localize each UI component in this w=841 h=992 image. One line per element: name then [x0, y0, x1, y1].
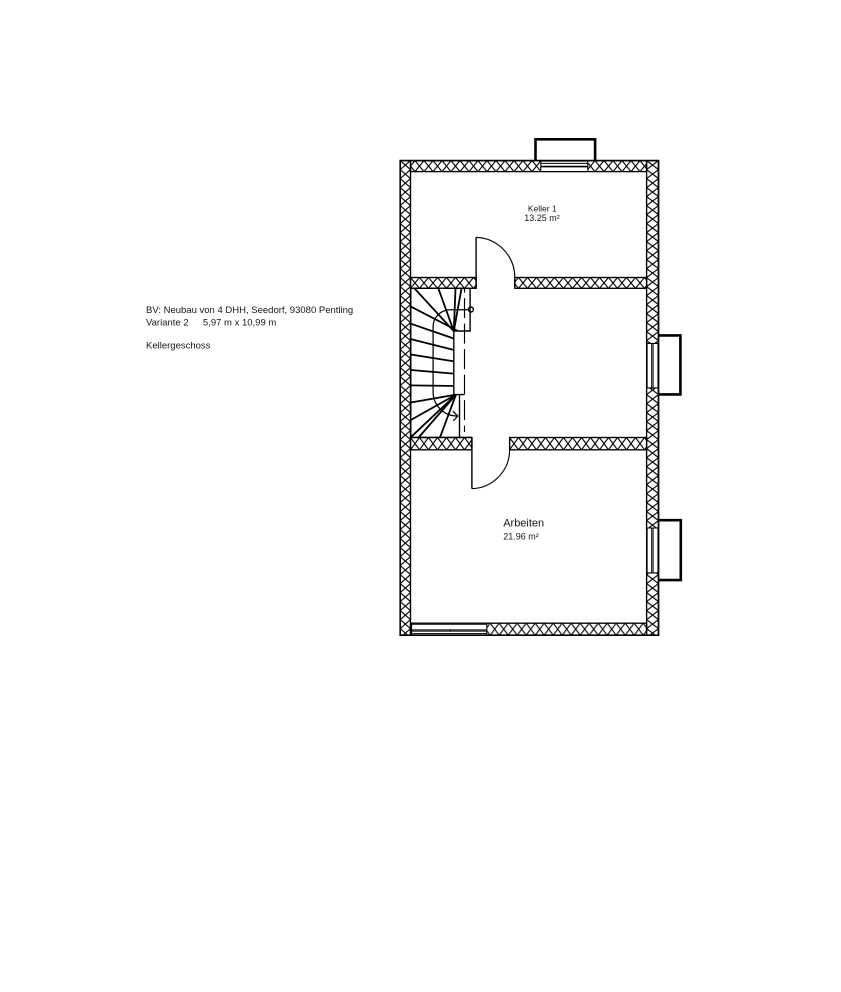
svg-text:Arbeiten: Arbeiten [503, 517, 544, 529]
svg-text:Keller 1: Keller 1 [528, 203, 557, 213]
svg-text:5,97 m x 10,99 m: 5,97 m x 10,99 m [203, 317, 276, 328]
svg-text:21.96 m²: 21.96 m² [503, 531, 539, 541]
svg-text:BV: Neubau von 4 DHH, Seedorf,: BV: Neubau von 4 DHH, Seedorf, 93080 Pen… [146, 305, 353, 316]
svg-text:13.25 m²: 13.25 m² [524, 213, 560, 223]
svg-text:Kellergeschoss: Kellergeschoss [146, 341, 211, 352]
svg-text:Variante 2: Variante 2 [146, 317, 189, 328]
